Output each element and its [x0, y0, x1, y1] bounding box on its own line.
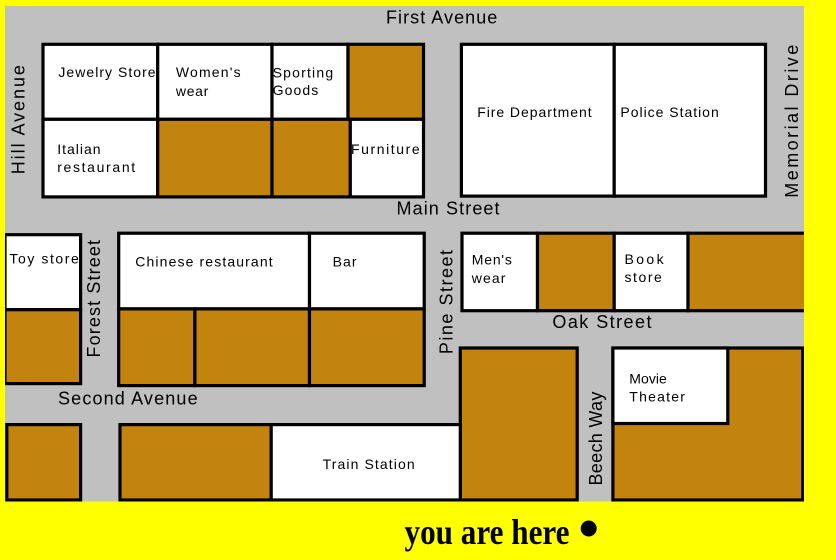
svg-text:Memorial Drive: Memorial Drive [782, 42, 802, 197]
svg-text:Beech Way: Beech Way [586, 391, 606, 485]
svg-text:store: store [625, 269, 664, 285]
svg-text:Fire Department: Fire Department [477, 104, 592, 120]
svg-text:Second Avenue: Second Avenue [58, 389, 199, 409]
svg-text:Police Station: Police Station [620, 104, 719, 120]
svg-text:wear: wear [175, 83, 209, 99]
svg-text:Pine Street: Pine Street [437, 249, 457, 355]
svg-text:Train Station: Train Station [323, 456, 416, 472]
svg-text:Goods: Goods [273, 82, 320, 98]
svg-text:Jewelry Store: Jewelry Store [58, 64, 156, 80]
svg-text:First Avenue: First Avenue [386, 7, 498, 27]
svg-text:you are here: you are here [405, 512, 570, 552]
svg-text:wear: wear [471, 270, 507, 286]
svg-text:Book: Book [625, 251, 667, 267]
svg-text:Bar: Bar [333, 254, 358, 270]
svg-text:Hill Avenue: Hill Avenue [8, 63, 28, 174]
svg-text:Chinese restaurant: Chinese restaurant [135, 254, 273, 270]
svg-text:Main Street: Main Street [397, 198, 501, 218]
svg-text:Italian: Italian [57, 141, 101, 157]
svg-text:Furniture: Furniture [351, 141, 421, 157]
svg-text:Forest Street: Forest Street [84, 239, 104, 358]
svg-text:Toy store: Toy store [9, 250, 80, 266]
svg-text:Theater: Theater [629, 389, 686, 405]
svg-text:Men's: Men's [472, 252, 513, 268]
svg-text:Oak Street: Oak Street [552, 312, 653, 332]
svg-text:Sporting: Sporting [273, 64, 335, 80]
svg-text:restaurant: restaurant [57, 159, 137, 175]
svg-text:Movie: Movie [629, 370, 667, 386]
svg-text:Women's: Women's [176, 64, 242, 80]
